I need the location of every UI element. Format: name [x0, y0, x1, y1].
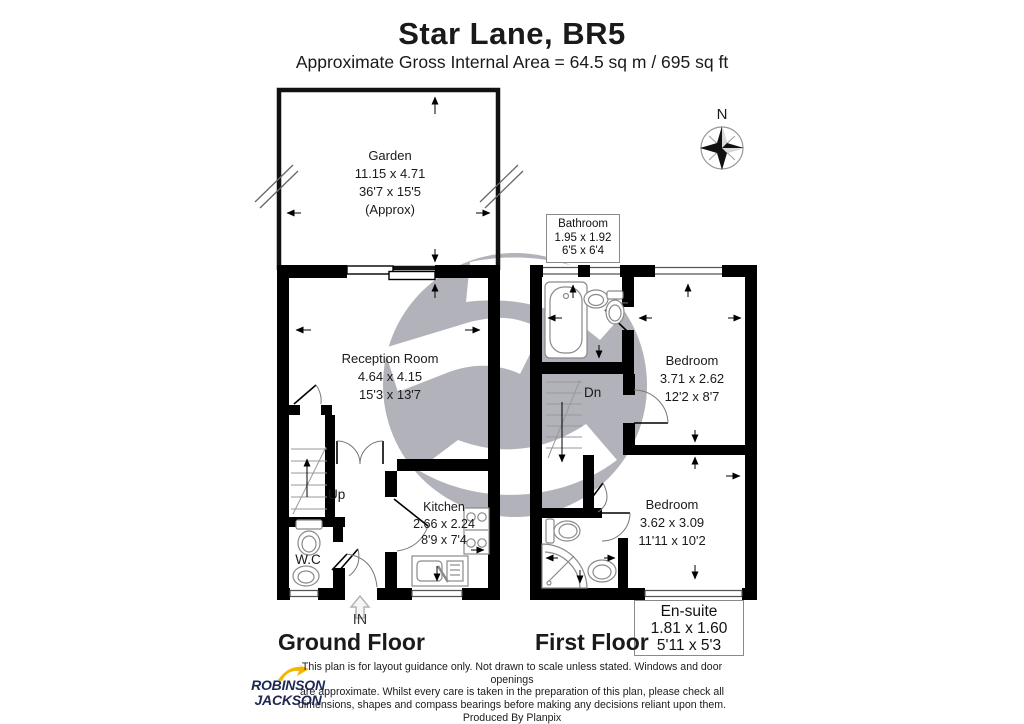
reception-room-label: Reception Room 4.64 x 4.15 15'3 x 13'7 — [320, 350, 460, 404]
compass-icon — [700, 126, 744, 170]
disclaimer-text: This plan is for layout guidance only. N… — [292, 661, 732, 724]
floorplan-page: Star Lane, BR5 Approximate Gross Interna… — [0, 0, 1024, 724]
page-subtitle: Approximate Gross Internal Area = 64.5 s… — [0, 52, 1024, 73]
wc-sink-icon — [293, 566, 319, 586]
bedroom2-label: Bedroom 3.62 x 3.09 11'11 x 10'2 — [602, 496, 742, 550]
ensuite-sink-icon — [588, 560, 616, 582]
stairs-up-icon — [291, 447, 327, 514]
stairs-up-label: Up — [328, 487, 360, 502]
floorplan-drawing — [0, 0, 1024, 724]
bathroom-label: Bathroom 1.95 x 1.92 6'5 x 6'4 — [546, 214, 620, 263]
robinson-jackson-logo: ROBINSON JACKSON — [246, 678, 330, 708]
stairs-down-label: Dn — [584, 385, 616, 400]
compass-north-label: N — [712, 106, 732, 123]
bathroom-toilet-icon — [606, 291, 624, 324]
wc-toilet-icon — [296, 520, 322, 555]
entrance-label: IN — [344, 612, 376, 628]
ground-floor-title: Ground Floor — [278, 629, 478, 656]
ensuite-toilet-icon — [546, 519, 580, 543]
kitchen-sink-icon — [412, 556, 468, 586]
wc-label: W.C — [288, 552, 328, 567]
kitchen-label: Kitchen 2.66 x 2.24 8'9 x 7'4 — [398, 499, 490, 549]
page-title: Star Lane, BR5 — [0, 16, 1024, 52]
first-floor-title: First Floor — [535, 629, 735, 656]
bedroom1-label: Bedroom 3.71 x 2.62 12'2 x 8'7 — [622, 352, 762, 406]
gf-windows-icon — [290, 591, 462, 597]
bathtub-icon — [545, 282, 587, 358]
bathroom-sink-icon — [584, 290, 608, 308]
garden-label: Garden 11.15 x 4.71 36'7 x 15'5 (Approx) — [320, 147, 460, 219]
